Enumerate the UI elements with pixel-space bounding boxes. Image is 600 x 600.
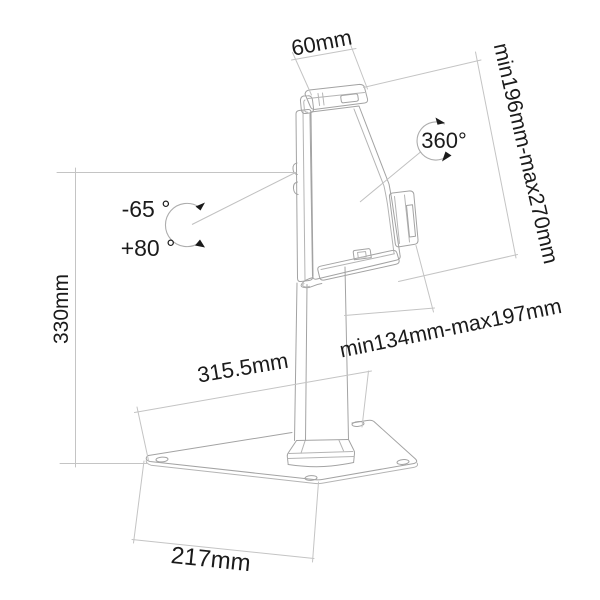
label-base-depth: 315.5mm <box>195 348 290 388</box>
ext-line <box>399 255 518 282</box>
base-screw-hole <box>305 475 317 480</box>
foot-right-bevel <box>349 440 355 463</box>
dimension-diagram: 60mm min196mm-max270mm 360° -65 ° +80 ° … <box>0 0 600 600</box>
ext-line <box>313 482 319 562</box>
dim-total-height <box>57 168 296 467</box>
label-base-width: 217mm <box>170 542 252 577</box>
tilt-arrowhead-down <box>195 240 205 248</box>
base-right-edge <box>375 422 417 464</box>
foot-facet-line <box>301 440 344 453</box>
column-foot <box>287 440 354 467</box>
dim-base-depth <box>135 371 372 461</box>
ext-line <box>364 60 482 88</box>
ext-line <box>137 407 149 461</box>
tilt-arc-icon <box>165 173 295 248</box>
right-clamp <box>389 191 418 247</box>
dimension-lines <box>57 42 518 562</box>
dim-line <box>345 308 435 316</box>
foot-facet-line <box>288 457 354 459</box>
bottom-clamp <box>301 249 399 288</box>
top-clamp-hook-inner <box>304 100 308 112</box>
label-holder-length-range: min196mm-max270mm <box>489 41 563 266</box>
rail-pivot-bump <box>293 182 298 195</box>
foot-top-edge <box>297 440 349 441</box>
base-screw-hole <box>156 457 168 463</box>
clamp-left-connector-detail <box>303 284 310 287</box>
foot-bottom-edge <box>288 463 353 467</box>
ext-line <box>134 461 145 543</box>
label-rotation: 360° <box>421 128 467 153</box>
label-clamp-width: 60mm <box>289 25 354 61</box>
lock-tab-slot <box>358 252 367 258</box>
base-plate <box>146 420 417 483</box>
column-front-edge <box>306 285 308 441</box>
tilt-arrowhead-up <box>196 203 206 211</box>
dim-holder-length <box>364 52 518 282</box>
foot-facet-line <box>289 452 353 454</box>
rotation-arrowhead-bottom <box>442 152 452 162</box>
right-clamp-pad <box>407 205 416 237</box>
ext-line <box>416 246 434 313</box>
rail-front-edge <box>303 111 305 281</box>
base-screw-hole <box>397 459 409 465</box>
label-total-height: 330mm <box>50 274 73 344</box>
base-thickness-edge <box>146 461 417 484</box>
stand-drawing <box>146 84 418 483</box>
label-holder-height-range: min134mm-max197mm <box>338 294 564 363</box>
ext-line <box>362 371 369 427</box>
foot-left-bevel <box>287 441 296 465</box>
label-tilt-negative: -65 ° <box>122 196 171 222</box>
holder-plate-outline <box>310 106 400 279</box>
top-clamp-slot <box>341 94 359 103</box>
label-tilt-positive: +80 ° <box>121 235 176 261</box>
tablet-holder <box>293 84 418 287</box>
base-back-left-edge <box>149 433 293 456</box>
top-clamp-detail <box>318 93 324 106</box>
tilt-leader-line <box>192 173 296 225</box>
stand-diagram-svg: 60mm min196mm-max270mm 360° -65 ° +80 ° … <box>0 0 600 600</box>
column-left-edge <box>295 283 298 441</box>
